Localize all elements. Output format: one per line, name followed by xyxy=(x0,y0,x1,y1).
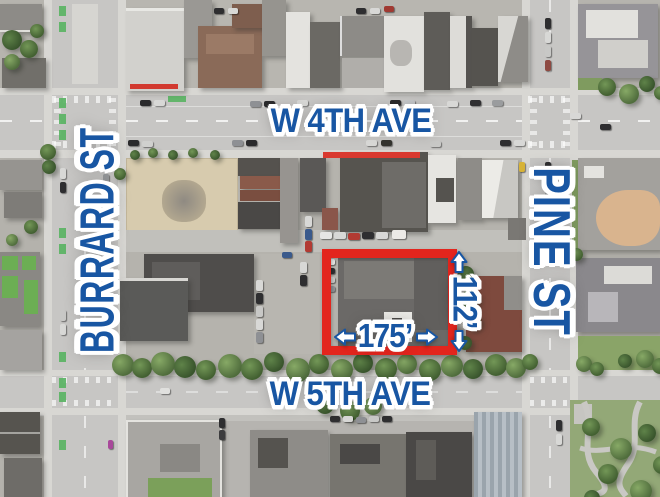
street-label-w5th: W 5TH AVE xyxy=(240,374,460,414)
arrow-down-icon xyxy=(450,330,468,352)
satellite-map: W 4TH AVE W 5TH AVE BURRARD ST PINE ST 1… xyxy=(0,0,660,497)
arrow-left-icon xyxy=(334,328,356,346)
street-label-pine: PINE ST xyxy=(522,152,579,352)
arrow-up-icon xyxy=(450,251,468,273)
street-label-w4th: W 4TH AVE xyxy=(241,101,461,141)
street-label-burrard: BURRARD ST xyxy=(67,133,127,353)
annotation-layer: W 4TH AVE W 5TH AVE BURRARD ST PINE ST 1… xyxy=(0,0,660,497)
parcel-depth-label: 112’ xyxy=(444,267,483,337)
parcel-frontage-label: 175’ xyxy=(345,318,425,355)
arrow-right-icon xyxy=(416,328,438,346)
